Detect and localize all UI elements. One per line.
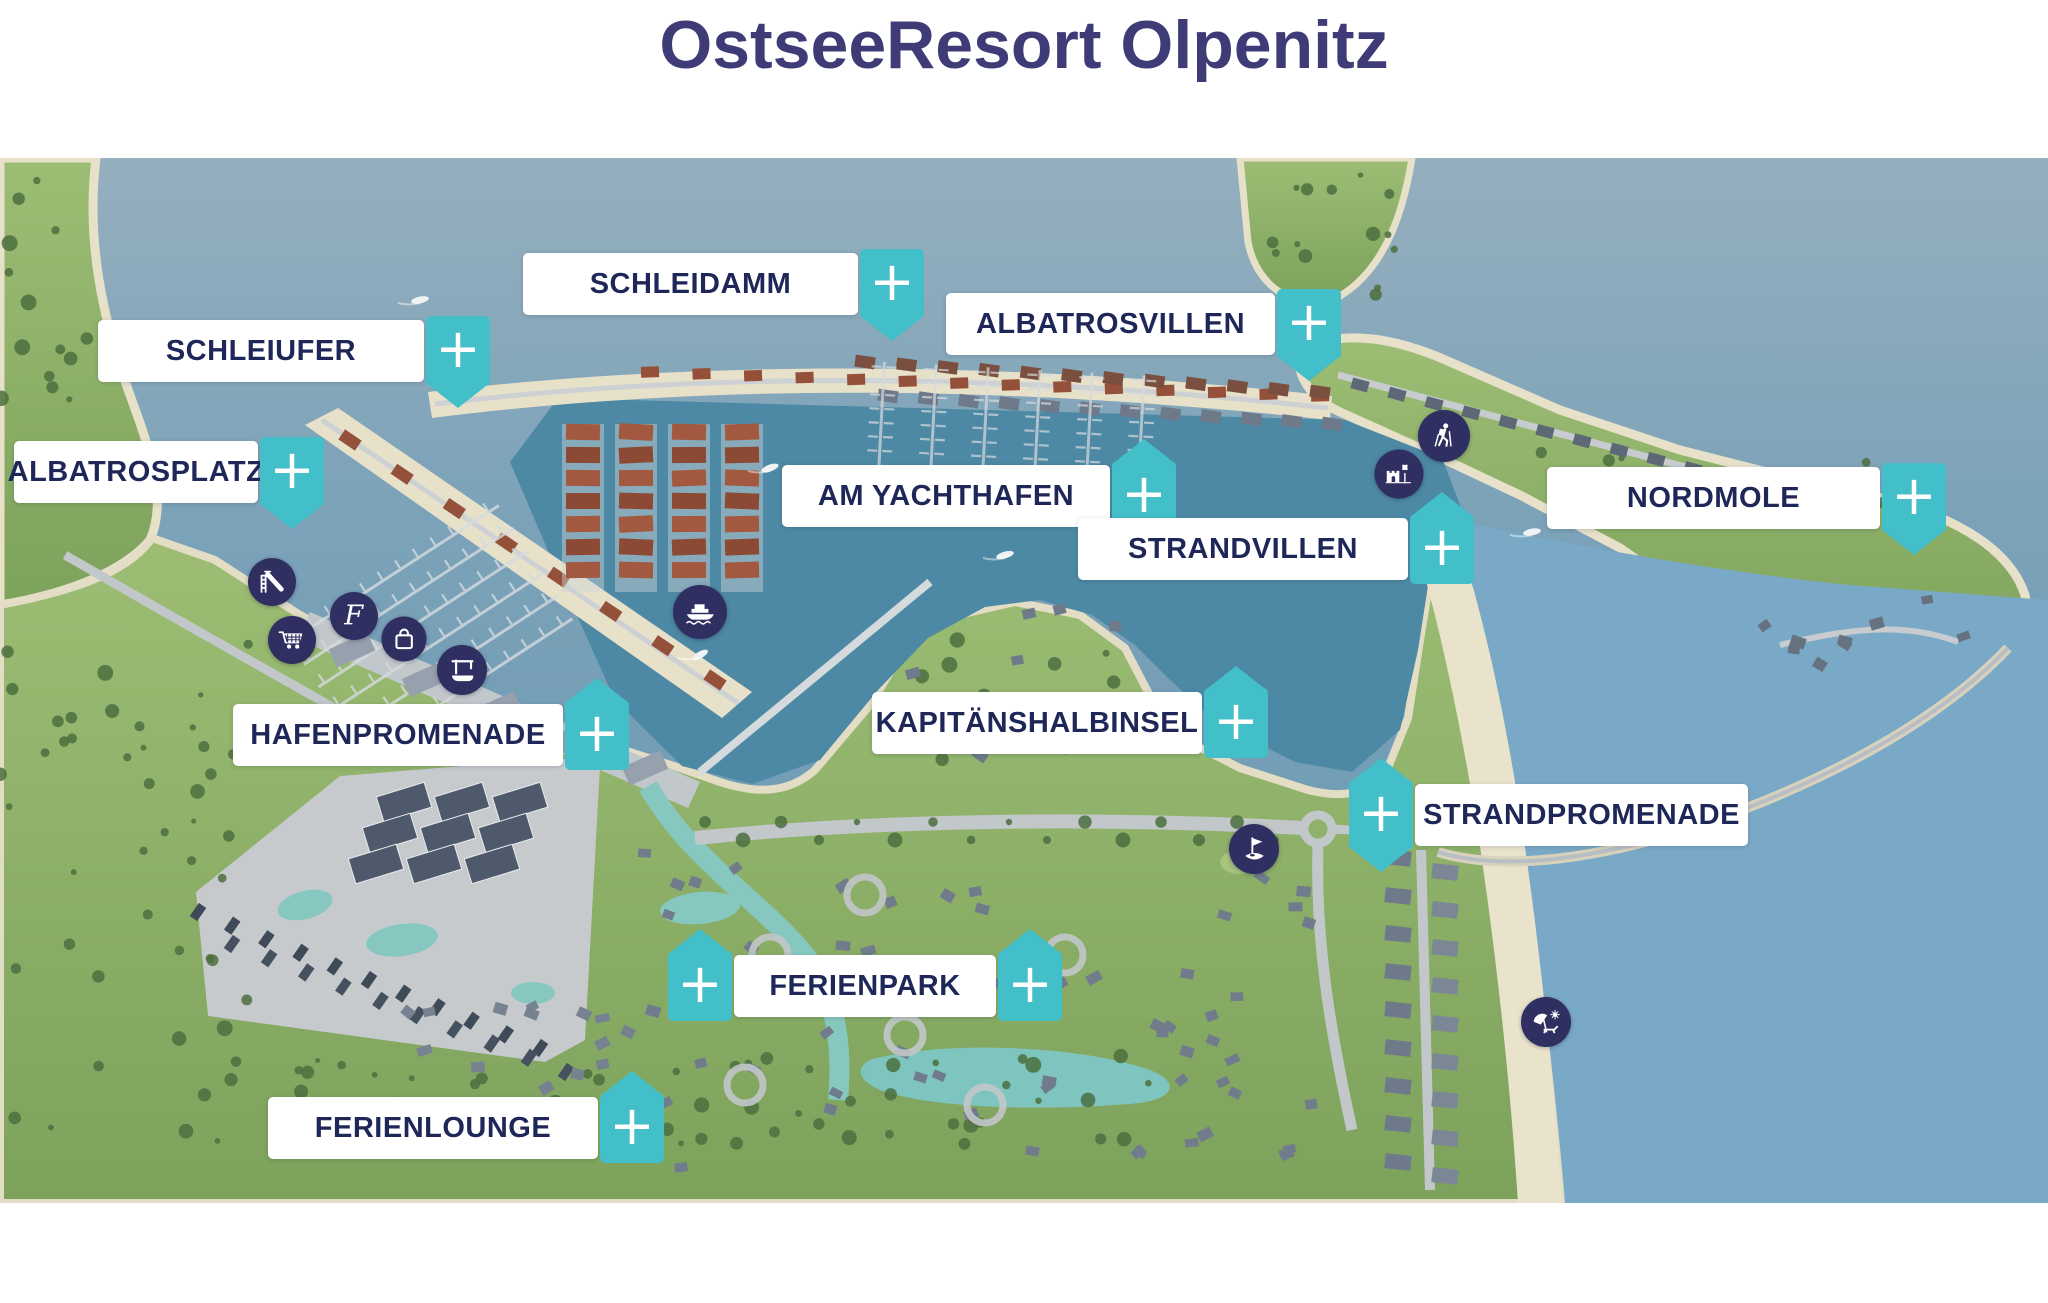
pointer-down-icon [264,507,320,529]
plus-icon: + [609,1099,654,1153]
plus-icon: + [435,322,480,376]
label-text: ALBATROSVILLEN [976,308,1245,341]
expand-albatrosplatz-button[interactable]: + [260,437,324,507]
label-text: STRANDPROMENADE [1423,799,1740,832]
expand-ferienpark-right-button[interactable]: + [998,951,1062,1021]
label-text: SCHLEIUFER [166,335,356,368]
plus-icon: + [677,957,722,1011]
label-strandpromenade[interactable]: STRANDPROMENADE + [1415,784,1748,846]
pointer-down-icon [1353,850,1409,872]
label-albatrosplatz[interactable]: ALBATROSPLATZ + [14,441,258,503]
label-box[interactable]: NORDMOLE [1547,467,1880,529]
plus-icon: + [869,255,914,309]
label-schleiufer[interactable]: SCHLEIUFER + [98,320,424,382]
plus-icon: + [1286,295,1331,349]
golf-icon [1229,824,1279,874]
label-box[interactable]: SCHLEIDAMM [523,253,858,315]
label-box[interactable]: AM YACHTHAFEN [782,465,1110,527]
expand-schleidamm-button[interactable]: + [860,249,924,319]
label-box[interactable]: HAFENPROMENADE [233,704,563,766]
label-box[interactable]: STRANDPROMENADE [1415,784,1748,846]
shopping-bag-icon [382,617,427,662]
expand-nordmole-button[interactable]: + [1882,463,1946,533]
label-text: KAPITÄNSHALBINSEL [876,707,1199,740]
svg-text:F: F [344,601,365,632]
label-strandvillen[interactable]: STRANDVILLEN + [1078,518,1408,580]
label-box[interactable]: SCHLEIUFER [98,320,424,382]
label-text: FERIENLOUNGE [315,1112,551,1145]
expand-ferienpark-left-button[interactable]: + [668,951,732,1021]
label-box[interactable]: FERIENLOUNGE [268,1097,598,1159]
label-box[interactable]: ALBATROSPLATZ [14,441,258,503]
pointer-down-icon [430,386,486,408]
label-albatrosvillen[interactable]: ALBATROSVILLEN + [946,293,1275,355]
label-text: ALBATROSPLATZ [8,456,265,489]
pointer-up-icon [1414,492,1470,514]
label-text: FERIENPARK [769,970,960,1003]
plus-icon: + [1419,520,1464,574]
label-text: STRANDVILLEN [1128,533,1358,566]
expand-schleiufer-button[interactable]: + [426,316,490,386]
pond-4 [511,982,555,1004]
hiker-icon [1418,410,1470,462]
expand-hafenpromenade-button[interactable]: + [565,700,629,770]
label-text: HAFENPROMENADE [250,719,545,752]
plus-icon: + [269,443,314,497]
plus-icon: + [1891,469,1936,523]
resort-map: SCHLEIDAMM + SCHLEIUFER + ALBATROSPLATZ … [0,158,2048,1203]
expand-kapitaenshalbinsel-button[interactable]: + [1204,688,1268,758]
pointer-down-icon [1281,359,1337,381]
label-text: NORDMOLE [1627,482,1800,515]
pointer-up-icon [604,1071,660,1093]
label-schleidamm[interactable]: SCHLEIDAMM + [523,253,858,315]
label-nordmole[interactable]: NORDMOLE + [1547,467,1880,529]
label-hafenpromenade[interactable]: HAFENPROMENADE + [233,704,563,766]
label-box[interactable]: FERIENPARK [734,955,996,1017]
label-box[interactable]: STRANDVILLEN [1078,518,1408,580]
pointer-down-icon [864,319,920,341]
ferry-icon [673,585,727,639]
pointer-up-icon [672,929,728,951]
pointer-up-icon [1353,758,1409,780]
plus-icon: + [1358,786,1403,840]
label-ferienlounge[interactable]: FERIENLOUNGE + [268,1097,598,1159]
expand-strandvillen-button[interactable]: + [1410,514,1474,584]
waterslide-icon [248,558,296,606]
label-box[interactable]: KAPITÄNSHALBINSEL [872,692,1202,754]
plus-icon: + [1121,467,1166,521]
pointer-up-icon [1116,439,1172,461]
label-am-yachthafen[interactable]: AM YACHTHAFEN + [782,465,1110,527]
label-kapitaenshalbinsel[interactable]: KAPITÄNSHALBINSEL + [872,692,1202,754]
beach-icon [1521,997,1571,1047]
plus-icon: + [574,706,619,760]
pointer-down-icon [1886,533,1942,555]
label-text: SCHLEIDAMM [590,268,792,301]
script-f-icon: F [330,592,378,640]
plus-icon: + [1213,694,1258,748]
label-ferienpark[interactable]: FERIENPARK + + [734,955,996,1017]
pointer-up-icon [569,678,625,700]
pointer-up-icon [1002,929,1058,951]
expand-ferienlounge-button[interactable]: + [600,1093,664,1163]
label-box[interactable]: ALBATROSVILLEN [946,293,1275,355]
boat-crane-icon [437,645,487,695]
label-text: AM YACHTHAFEN [818,480,1074,513]
plus-icon: + [1007,957,1052,1011]
expand-strandpromenade-button[interactable]: + [1349,780,1413,850]
resort-map-page: OstseeResort Olpenitz [0,0,2048,1303]
shopping-cart-icon [268,616,316,664]
pointer-up-icon [1208,666,1264,688]
page-title: OstseeResort Olpenitz [0,6,2048,84]
expand-albatrosvillen-button[interactable]: + [1277,289,1341,359]
